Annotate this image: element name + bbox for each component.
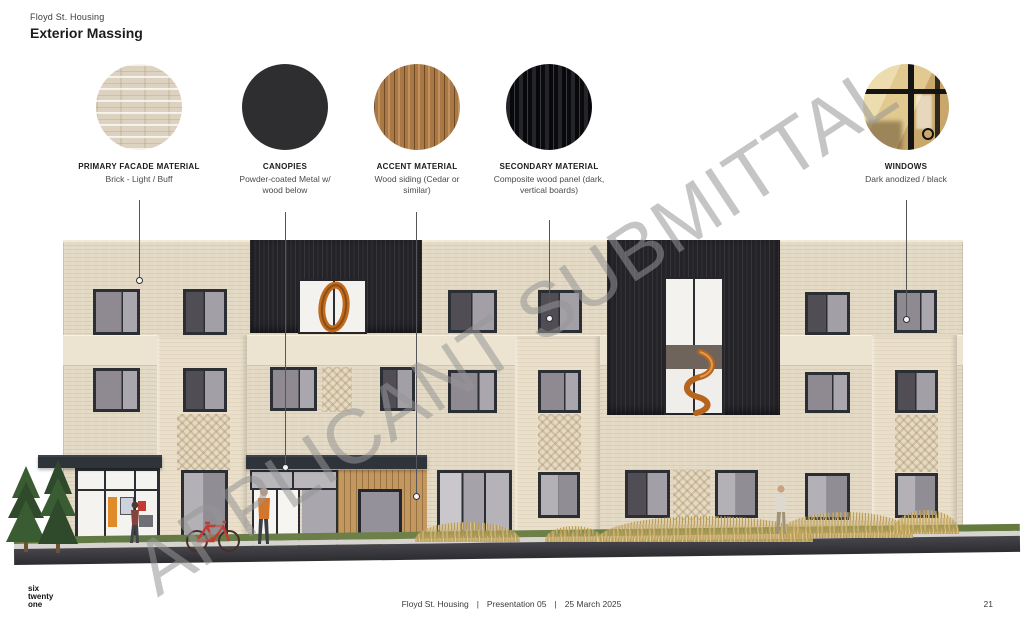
leader-marker	[136, 277, 143, 284]
basket-weave-panel	[895, 415, 938, 472]
sculpture-swirl	[670, 348, 722, 416]
composite-panel-swatch	[506, 64, 592, 150]
glass-reflection	[916, 95, 931, 129]
page-number: 21	[984, 599, 993, 609]
window-frame-vertical	[935, 64, 939, 150]
leader-line	[139, 200, 140, 279]
footer-separator: |	[554, 599, 556, 609]
material-label: ACCENT MATERIAL Wood siding (Cedar or si…	[347, 162, 487, 196]
window	[715, 470, 758, 518]
material-desc: Brick - Light / Buff	[89, 174, 189, 185]
material-label: CANOPIES Powder-coated Metal w/ wood bel…	[215, 162, 355, 196]
basket-weave-panel	[538, 414, 581, 470]
window	[183, 368, 227, 412]
material-desc: Wood siding (Cedar or similar)	[369, 174, 465, 196]
footer-presentation: Presentation 05	[487, 599, 547, 609]
material-desc: Composite wood panel (dark, vertical boa…	[488, 174, 610, 196]
person-figure	[770, 485, 792, 537]
storefront-mullion	[104, 471, 106, 543]
storefront-transom	[78, 489, 157, 491]
window	[93, 368, 140, 412]
slide-page: Floyd St. Housing Exterior Massing PRIMA…	[0, 0, 1023, 628]
window	[625, 470, 670, 518]
window	[895, 370, 938, 413]
window	[805, 292, 850, 335]
material-name: ACCENT MATERIAL	[347, 162, 487, 171]
window	[805, 372, 850, 413]
door-handle	[922, 128, 934, 140]
sculpture-ring	[312, 281, 356, 333]
brick-swatch	[96, 64, 182, 150]
page-title: Exterior Massing	[30, 25, 143, 41]
canopy-metal-swatch	[242, 64, 328, 150]
material-desc: Dark anodized / black	[851, 174, 961, 185]
window	[270, 367, 317, 411]
cedar-swatch	[374, 64, 460, 150]
window	[538, 472, 580, 518]
evergreen-trees	[4, 456, 84, 554]
material-name: PRIMARY FACADE MATERIAL	[69, 162, 209, 171]
material-label: PRIMARY FACADE MATERIAL Brick - Light / …	[69, 162, 209, 185]
project-name: Floyd St. Housing	[30, 12, 104, 22]
basket-weave-panel	[177, 414, 230, 470]
material-name: WINDOWS	[836, 162, 976, 171]
footer-separator: |	[477, 599, 479, 609]
window	[894, 290, 937, 333]
window	[183, 289, 227, 335]
material-name: CANOPIES	[215, 162, 355, 171]
material-desc: Powder-coated Metal w/ wood below	[232, 174, 338, 196]
glass-pane	[666, 279, 722, 345]
footer-caption: Floyd St. Housing|Presentation 05|25 Mar…	[0, 599, 1023, 609]
basket-weave-panel	[673, 470, 710, 520]
material-label: SECONDARY MATERIAL Composite wood panel …	[479, 162, 619, 196]
material-label: WINDOWS Dark anodized / black	[836, 162, 976, 185]
window-frame-vertical	[908, 64, 914, 150]
footer-project: Floyd St. Housing	[402, 599, 469, 609]
footer-date: 25 March 2025	[565, 599, 622, 609]
window-mullion	[693, 279, 695, 345]
leader-line	[906, 200, 907, 318]
window	[93, 289, 140, 335]
leader-marker	[413, 493, 420, 500]
window	[538, 370, 581, 413]
leader-marker	[903, 316, 910, 323]
art-display	[108, 497, 117, 527]
material-name: SECONDARY MATERIAL	[479, 162, 619, 171]
